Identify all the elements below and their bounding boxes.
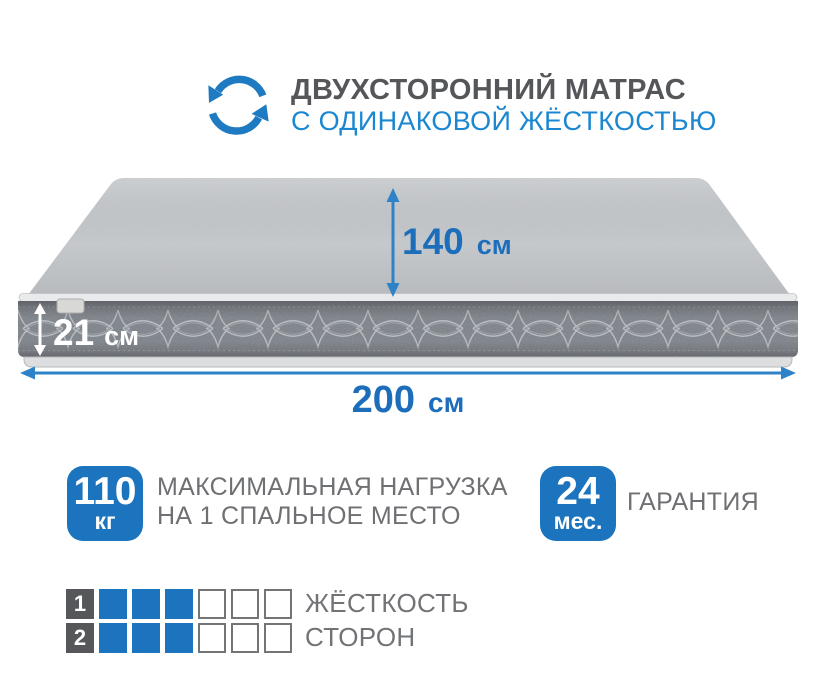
height-dimension-label: 21 см [53,312,139,354]
header-subtitle: С ОДИНАКОВОЙ ЖЁСТКОСТЬЮ [291,106,717,137]
firmness-cell-filled [165,623,193,653]
firmness-row-label: 1 [66,589,94,619]
mattress-infographic: ДВУХСТОРОННИЙ МАТРАС С ОДИНАКОВОЙ ЖЁСТКО… [0,0,816,700]
length-dimension-label: 200 см [0,379,816,422]
warranty-badge: 24 мес. [540,466,616,541]
length-unit: см [428,387,464,419]
warranty-description: ГАРАНТИЯ [627,488,759,517]
firmness-caption-line1: ЖЁСТКОСТЬ [305,588,469,618]
firmness-caption-line2: СТОРОН [305,622,469,652]
mattress-label-tab [57,299,84,313]
header-title: ДВУХСТОРОННИЙ МАТРАС [291,74,686,107]
firmness-cell-filled [99,589,127,619]
max-load-description: МАКСИМАЛЬНАЯ НАГРУЗКА НА 1 СПАЛЬНОЕ МЕСТ… [157,473,508,531]
warranty-description-line1: ГАРАНТИЯ [627,488,759,517]
firmness-row: 2 [66,623,292,653]
firmness-cell-empty [198,589,226,619]
max-load-unit: кг [94,510,115,533]
firmness-cell-filled [165,589,193,619]
firmness-cell-filled [99,623,127,653]
firmness-row-label: 2 [66,623,94,653]
firmness-caption: ЖЁСТКОСТЬ СТОРОН [305,588,469,656]
warranty-value: 24 [556,474,599,510]
max-load-value: 110 [74,474,137,510]
firmness-cell-filled [132,623,160,653]
firmness-cell-empty [264,623,292,653]
firmness-row: 1 [66,589,292,619]
height-unit: см [104,321,139,352]
warranty-unit: мес. [554,510,603,533]
firmness-grid: 12 [66,589,292,653]
length-value: 200 [352,379,415,422]
height-value: 21 [53,312,94,354]
firmness-cell-empty [198,623,226,653]
max-load-description-line1: МАКСИМАЛЬНАЯ НАГРУЗКА [157,473,508,502]
two-sided-rotate-icon [203,68,271,140]
max-load-badge: 110 кг [67,466,143,541]
mattress-piping [19,294,797,302]
firmness-cell-empty [264,589,292,619]
width-unit: см [477,230,512,261]
firmness-cell-empty [231,623,259,653]
width-dimension-label: 140 см [402,221,512,263]
mattress-base [24,357,792,367]
firmness-cell-empty [231,589,259,619]
width-value: 140 [402,221,464,263]
length-dimension-arrow [20,367,796,380]
firmness-cell-filled [132,589,160,619]
max-load-description-line2: НА 1 СПАЛЬНОЕ МЕСТО [157,502,508,531]
